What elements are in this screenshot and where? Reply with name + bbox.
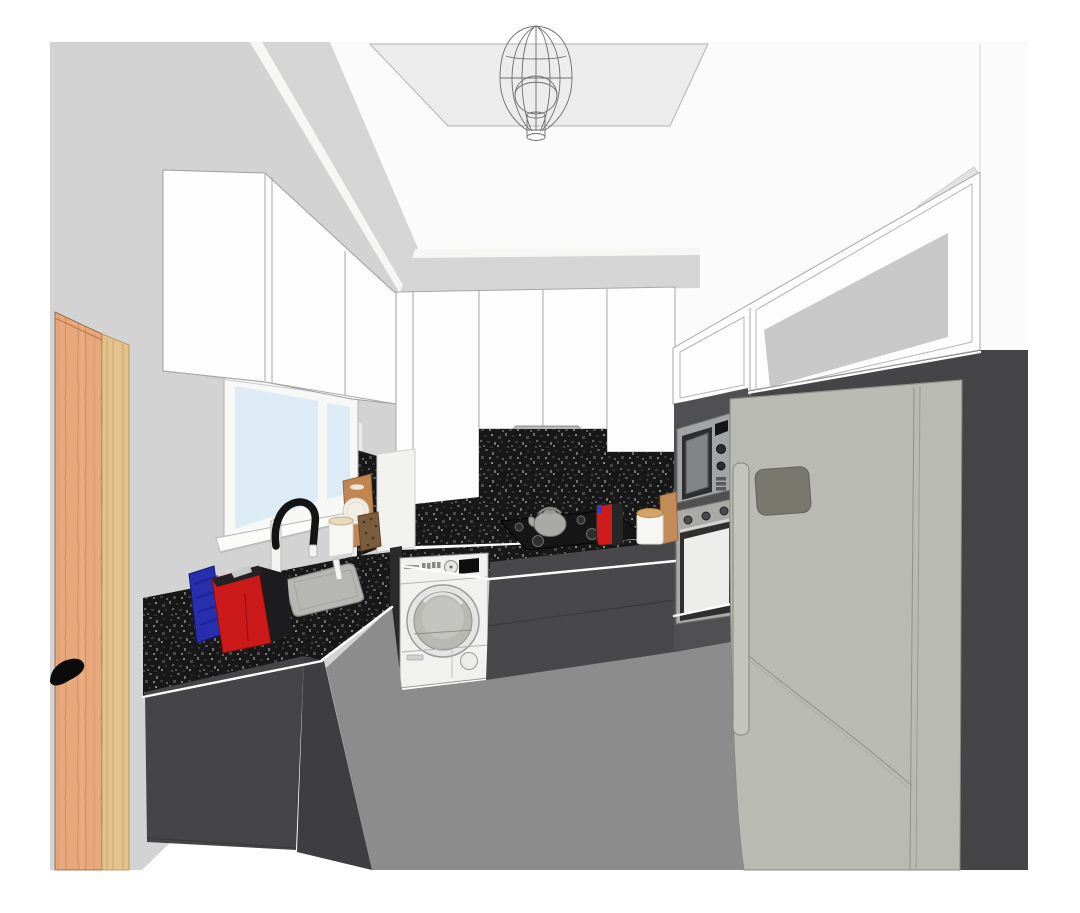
canister-front-lid — [329, 517, 353, 525]
coffee-pouch — [358, 512, 381, 551]
oven-knob-2 — [702, 512, 710, 520]
microwave-knob-bottom — [717, 462, 725, 470]
microwave-buttons — [716, 477, 726, 491]
built-in-microwave — [677, 413, 731, 503]
bag-handle-slot — [350, 484, 364, 490]
canister-back — [637, 509, 663, 545]
small-coffee-machine — [596, 504, 623, 545]
back-soffit — [400, 255, 700, 292]
wooden-door — [50, 312, 129, 870]
corner-cabinet-column — [377, 449, 415, 552]
refrigerator — [730, 380, 962, 870]
canister-back-lid — [637, 509, 663, 518]
storage-canister — [329, 517, 353, 557]
microwave-knob-top — [717, 445, 726, 454]
small-machine-lever — [597, 505, 602, 513]
washer-filter-cap — [461, 653, 478, 670]
washer-knob-dot — [450, 566, 453, 569]
fridge-handle — [733, 463, 749, 735]
faucet-spout-tip — [309, 545, 317, 557]
kitchen-render — [0, 0, 1080, 913]
kitchen-render-page — [0, 0, 1080, 913]
washer-display — [459, 558, 479, 574]
door-trim — [102, 334, 129, 870]
washer-vent — [407, 655, 423, 660]
kettle-body — [534, 512, 566, 537]
oven-knob-1 — [684, 516, 692, 524]
oven-knob-3 — [720, 507, 728, 515]
door-panel — [55, 312, 102, 870]
microwave-screen — [686, 433, 708, 494]
oven-door-glass — [684, 528, 729, 614]
fridge-dispenser-panel — [754, 466, 811, 516]
fridge-body — [730, 380, 962, 870]
